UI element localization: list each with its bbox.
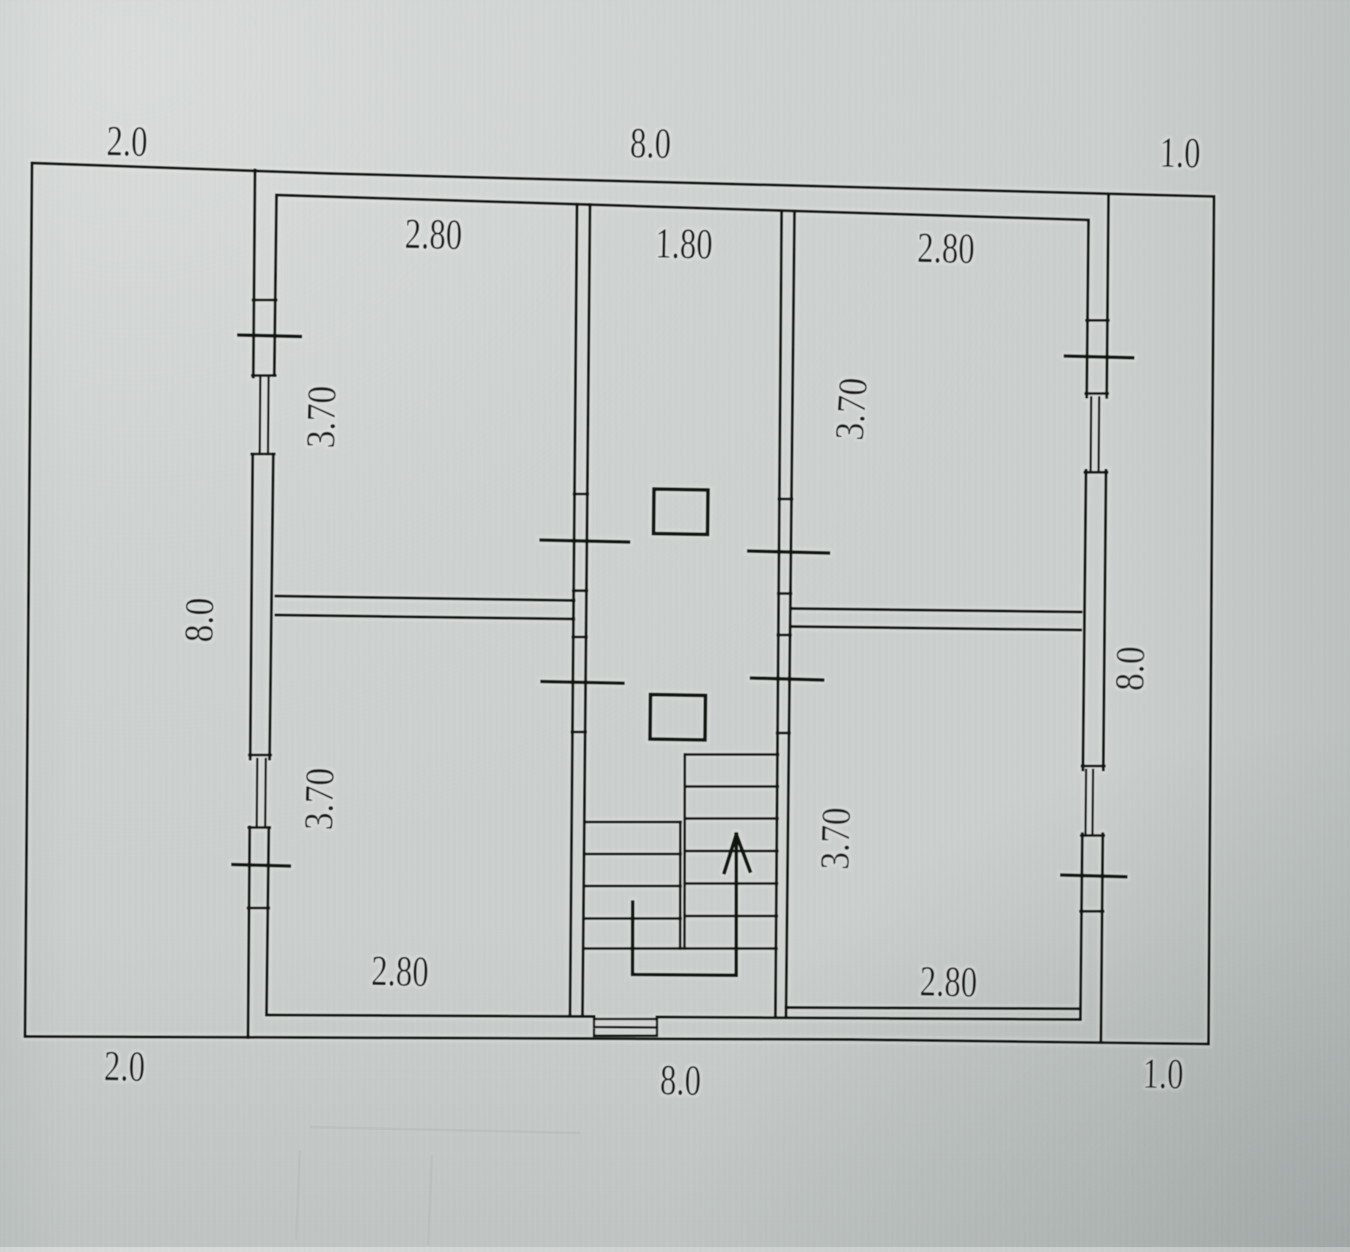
- svg-text:8.0: 8.0: [1108, 646, 1154, 692]
- svg-text:3.70: 3.70: [827, 376, 876, 441]
- svg-text:1.0: 1.0: [1159, 129, 1201, 177]
- svg-text:3.70: 3.70: [813, 807, 859, 871]
- svg-text:2.80: 2.80: [404, 211, 462, 259]
- svg-text:8.0: 8.0: [630, 120, 672, 168]
- svg-text:2.80: 2.80: [371, 948, 429, 996]
- svg-text:2.0: 2.0: [106, 118, 148, 166]
- svg-text:8.0: 8.0: [660, 1057, 702, 1105]
- svg-text:3.70: 3.70: [297, 767, 343, 831]
- svg-text:2.80: 2.80: [919, 958, 977, 1006]
- svg-text:1.80: 1.80: [655, 220, 713, 268]
- svg-text:8.0: 8.0: [177, 597, 223, 643]
- svg-text:3.70: 3.70: [299, 385, 345, 449]
- svg-text:1.0: 1.0: [1142, 1050, 1184, 1098]
- svg-text:2.80: 2.80: [917, 225, 975, 273]
- svg-text:2.0: 2.0: [104, 1043, 146, 1091]
